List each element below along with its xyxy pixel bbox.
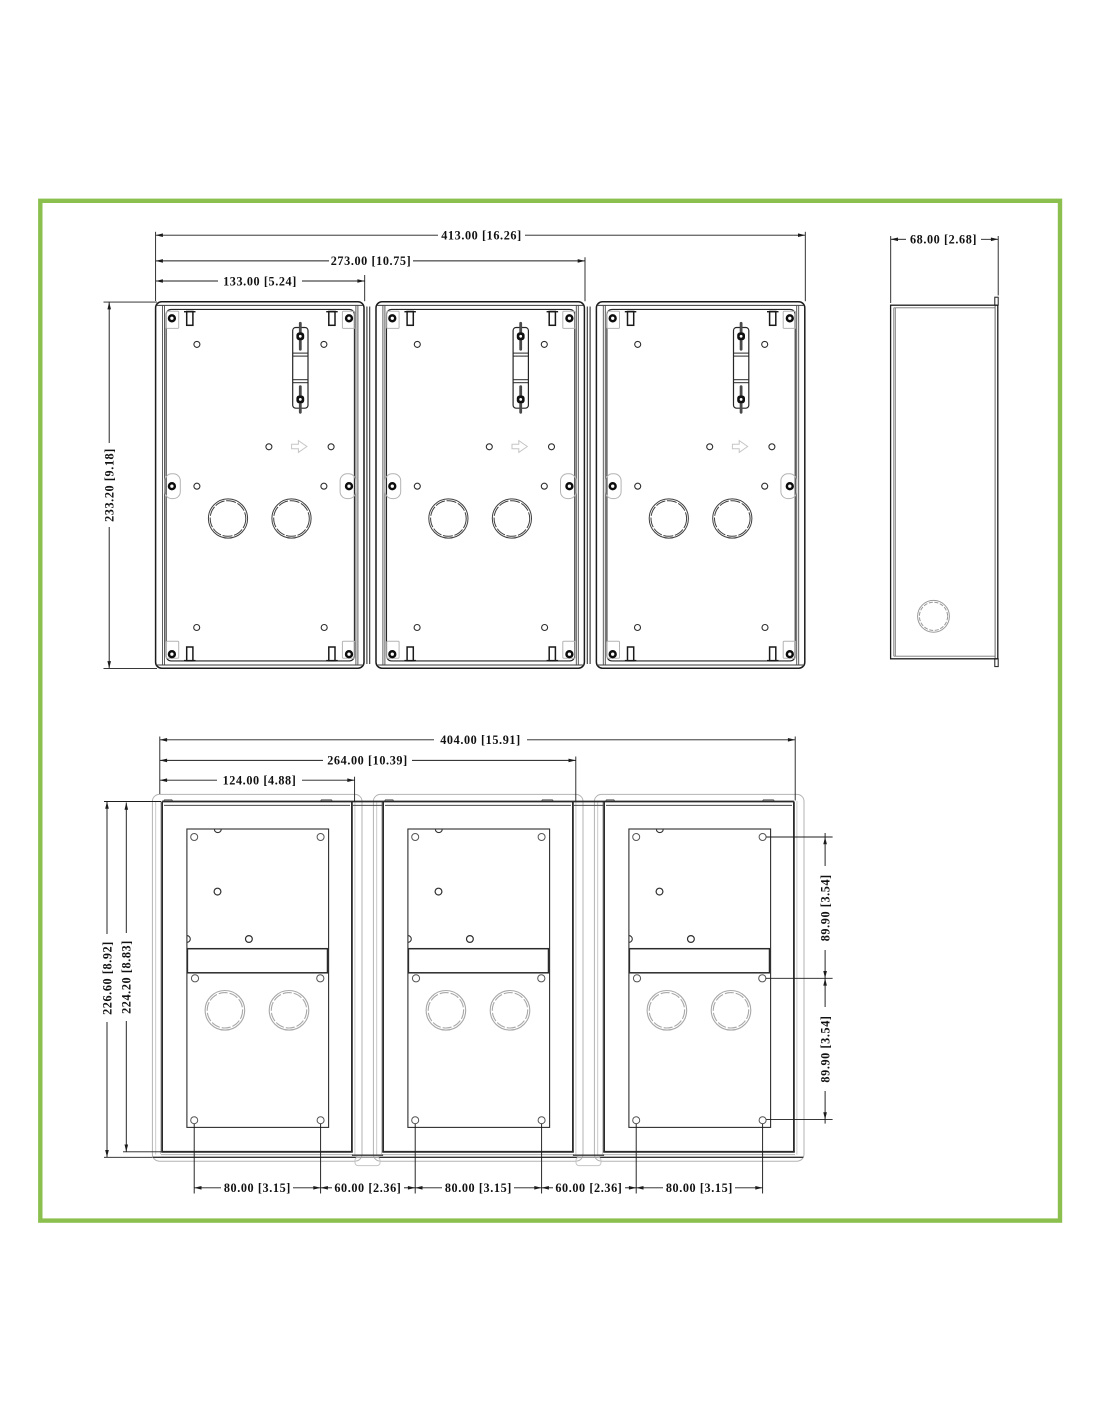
svg-text:80.00 [3.15]: 80.00 [3.15] [224, 1181, 291, 1195]
svg-text:80.00 [3.15]: 80.00 [3.15] [445, 1181, 512, 1195]
svg-text:226.60 [8.92]: 226.60 [8.92] [100, 941, 114, 1015]
svg-text:68.00 [2.68]: 68.00 [2.68] [910, 233, 977, 247]
svg-text:124.00 [4.88]: 124.00 [4.88] [223, 774, 297, 788]
svg-text:224.20 [8.83]: 224.20 [8.83] [120, 940, 134, 1014]
svg-text:133.00 [5.24]: 133.00 [5.24] [223, 274, 297, 288]
svg-text:80.00 [3.15]: 80.00 [3.15] [666, 1181, 733, 1195]
svg-text:89.90 [3.54]: 89.90 [3.54] [818, 874, 832, 941]
svg-text:60.00 [2.36]: 60.00 [2.36] [555, 1181, 622, 1195]
svg-text:404.00 [15.91]: 404.00 [15.91] [440, 733, 521, 747]
svg-text:89.90 [3.54]: 89.90 [3.54] [818, 1015, 832, 1082]
svg-text:264.00 [10.39]: 264.00 [10.39] [327, 754, 408, 768]
svg-text:273.00 [10.75]: 273.00 [10.75] [331, 254, 412, 268]
svg-text:60.00 [2.36]: 60.00 [2.36] [334, 1181, 401, 1195]
svg-text:413.00 [16.26]: 413.00 [16.26] [441, 229, 522, 243]
svg-text:233.20 [9.18]: 233.20 [9.18] [103, 448, 117, 522]
